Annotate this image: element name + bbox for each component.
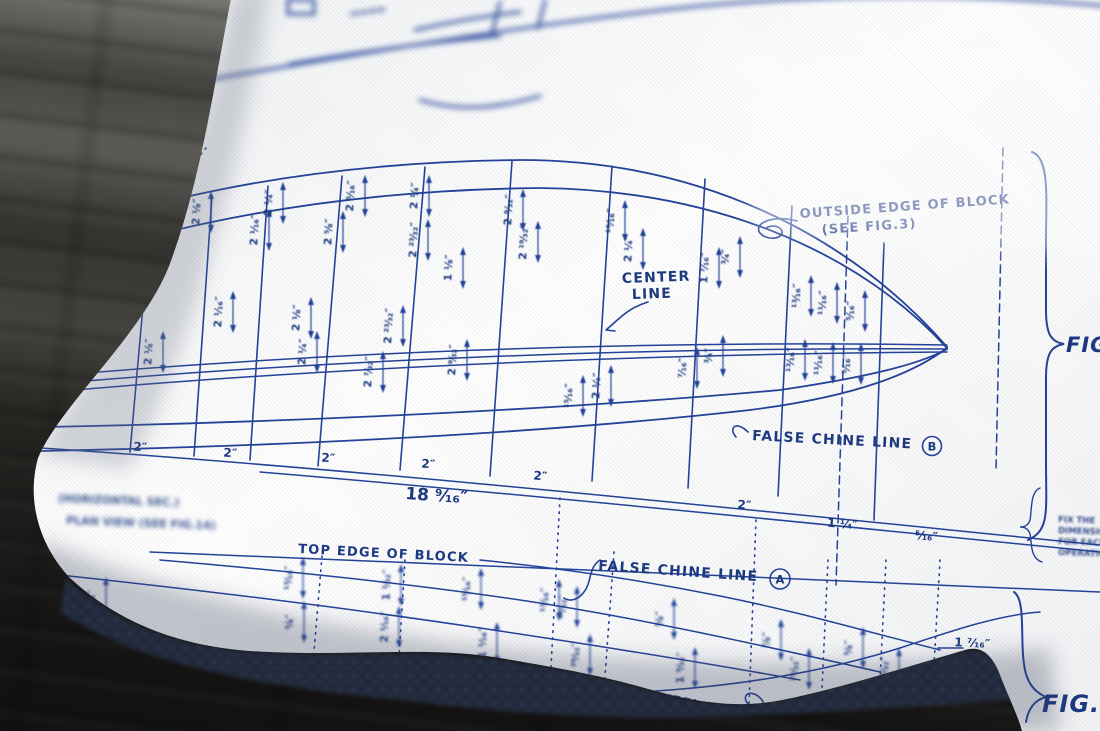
mark-b: B [928, 440, 937, 454]
dimension-label: 2 ⁷⁄₃₂″ [362, 356, 376, 388]
dimension-label: 2 ⁵⁄₁₆″ [344, 180, 358, 212]
spacing-label: 1 ¹⁄₄″ [827, 516, 859, 533]
dimension-label: ⁷⁄₈″ [761, 632, 774, 648]
dimension-label: 2 ¹⁄₈″ [290, 304, 303, 332]
spacing-label: 2″ [421, 457, 436, 472]
dimension-label: 2 ⁹⁄₃₂″ [446, 344, 460, 376]
dimension-label: 2 ¹⁄₁₆″ [212, 296, 226, 328]
spacing-label: 1 ⁷⁄₁₆″ [954, 635, 991, 651]
dimension-label: ⁵⁄₁₆″ [840, 353, 853, 374]
dimension-label: 2 ¹⁄₄″ [408, 182, 421, 210]
spacing-label: 2″ [321, 451, 336, 466]
dimension-label: ¹⁵⁄₁₆″ [604, 208, 617, 234]
photo-scene: OUTSIDE EDGE OF BLOCK (SEE FIG.3) CENTER… [0, 0, 1100, 731]
dimension-label: ¹³⁄₃₂″ [557, 594, 570, 620]
dimension-label: 1 ¹⁄₈″ [442, 254, 455, 282]
mark-a: A [776, 573, 785, 587]
side-note-line: FOR EACH [1058, 537, 1100, 549]
dimension-label: ³⁄₄″ [703, 347, 716, 364]
dimension-label: ⁵⁄₈″ [843, 640, 856, 656]
dimension-label: 2 ¹⁄₄″ [590, 372, 603, 400]
dimension-label: 2 ²³⁄₃₂″ [382, 307, 396, 344]
dimension-label: 2 ¹⁹⁄₃₂″ [517, 223, 531, 260]
dimension-label: ¹⁵⁄₁₆″ [562, 383, 575, 409]
dimension-label: ⁷⁄₁₆″ [676, 357, 689, 378]
dimension-label: 1 ¹⁄₃₂″ [380, 569, 393, 601]
dimension-label: ³⁄₄″ [720, 248, 733, 265]
dimension-label: 2 ⁹⁄₃₂″ [502, 194, 516, 226]
dimension-label: ¹³⁄₁₆″ [539, 587, 552, 613]
spacing-label: 2″ [533, 468, 549, 483]
dimension-label: ¹⁵⁄₁₆″ [461, 576, 474, 602]
dimension-label: 2 ¹⁄₄″ [622, 235, 635, 263]
center-line-label-1: CENTER [622, 269, 691, 287]
dimension-label: 2 ¹⁄₁₆″ [248, 214, 262, 246]
dimension-label: 2 ¹⁄₄″ [262, 189, 275, 217]
dimension-label: ¹¹⁄₁₆″ [816, 290, 829, 316]
spacing-label: ⁵⁄₁₆″ [914, 528, 939, 544]
dimension-label: ⁵⁄₈″ [654, 611, 667, 627]
side-note: FIX THE DIMENSIONS FOR EACH OPERATION [1058, 515, 1100, 560]
dimension-label: 2 ¹⁄₄″ [296, 338, 309, 366]
pillow-photo: OUTSIDE EDGE OF BLOCK (SEE FIG.3) CENTER… [0, 0, 1100, 731]
dimension-label: ¹¹⁄₁₆″ [812, 350, 825, 376]
dimension-label: ¹³⁄₁₆″ [784, 347, 797, 373]
dimension-label: 2 ⁵⁄₈″ [322, 218, 335, 246]
spacing-label: 2″ [223, 446, 238, 461]
spacing-label: 2″ [737, 497, 753, 512]
center-line-label-2: LINE [632, 286, 673, 303]
dimension-label: ⁵⁄₁₆″ [844, 300, 857, 321]
dimension-label: ¹³⁄₁₆″ [790, 283, 803, 309]
side-note-line: OPERATION [1058, 548, 1100, 560]
fig-right-label: FIG [1066, 333, 1100, 357]
dimension-label: ¹³⁄₁₆″ [283, 565, 296, 591]
dimension-label: 1 ⁷⁄₁₆″ [698, 252, 712, 284]
side-note-line: FIX THE [1058, 515, 1096, 526]
dimension-label: 2 ²³⁄₃₂″ [407, 221, 421, 258]
